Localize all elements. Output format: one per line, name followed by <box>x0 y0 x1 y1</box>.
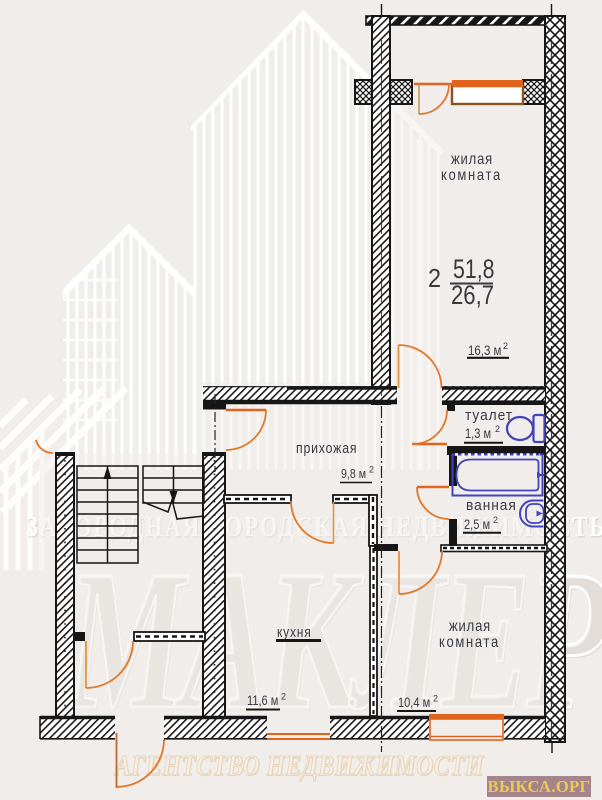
svg-text:2: 2 <box>281 692 286 702</box>
svg-text:2: 2 <box>433 694 438 704</box>
svg-text:комната: комната <box>439 634 500 651</box>
svg-text:26,7: 26,7 <box>451 281 494 311</box>
svg-text:11,6 м: 11,6 м <box>247 693 278 708</box>
svg-text:2: 2 <box>369 465 374 475</box>
svg-text:кухня: кухня <box>277 624 312 641</box>
svg-text:2: 2 <box>428 265 441 293</box>
svg-text:2: 2 <box>503 341 508 351</box>
svg-text:2: 2 <box>495 424 500 434</box>
svg-text:16,3 м: 16,3 м <box>468 342 501 358</box>
svg-text:комната: комната <box>441 167 502 184</box>
svg-text:ванная: ванная <box>466 497 517 513</box>
svg-text:2: 2 <box>493 515 498 525</box>
svg-text:туалет: туалет <box>465 407 513 423</box>
svg-text:жилая: жилая <box>451 151 493 168</box>
svg-text:жилая: жилая <box>449 618 491 635</box>
svg-text:9,8 м: 9,8 м <box>341 466 366 481</box>
svg-text:10,4 м: 10,4 м <box>398 695 430 710</box>
svg-text:2,5 м: 2,5 м <box>464 517 490 532</box>
svg-text:1,3 м: 1,3 м <box>465 426 491 441</box>
svg-text:прихожая: прихожая <box>296 440 357 456</box>
